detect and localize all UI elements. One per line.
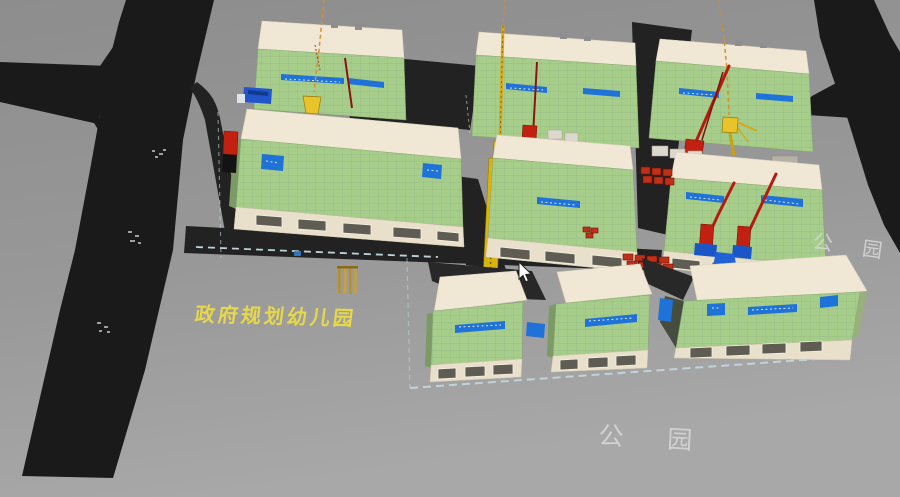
building-1-back[interactable] (254, 21, 406, 120)
building-9[interactable] (660, 255, 867, 360)
building-2-front[interactable] (229, 109, 464, 247)
blue-sign-panel (658, 298, 673, 322)
dump-truck-red[interactable] (222, 131, 238, 173)
blue-sign-board (526, 322, 545, 338)
building-4-front[interactable] (486, 135, 638, 272)
site-shed (548, 130, 562, 139)
building-8[interactable] (547, 264, 652, 372)
kindergarten-label: 政府规划幼儿园 (194, 302, 358, 330)
building-7[interactable] (425, 271, 527, 382)
model-viewport[interactable]: 政府规划幼儿园 公园 公园 (0, 0, 900, 497)
